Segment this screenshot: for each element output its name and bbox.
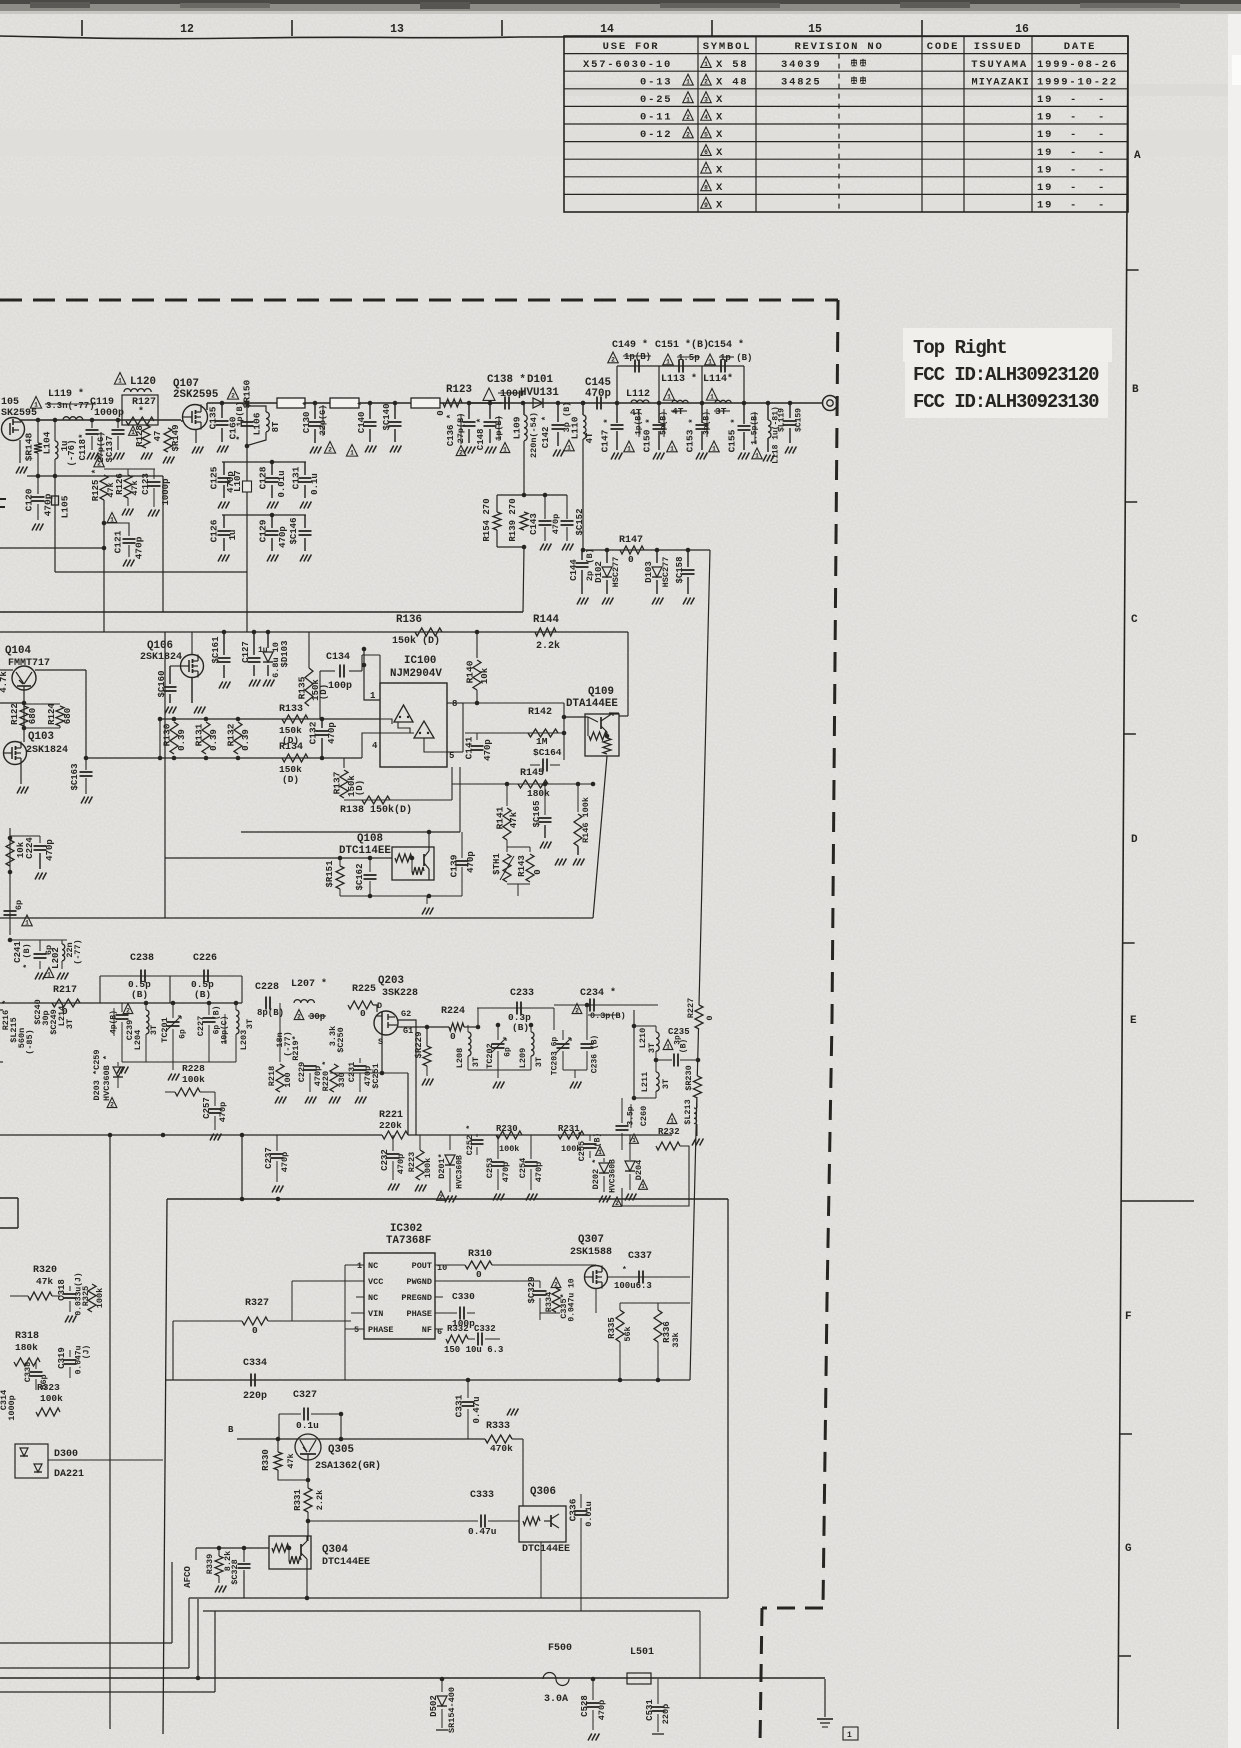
svg-text:$L119: $L119 [778,408,787,432]
svg-text:1: 1 [632,1137,636,1144]
svg-text:*: * [622,1266,627,1275]
svg-text:14: 14 [600,23,614,36]
svg-text:2SK1824: 2SK1824 [140,652,182,663]
svg-text:R122: R122 [10,703,20,725]
svg-text:MIYAZAKI: MIYAZAKI [971,77,1030,88]
svg-text:34039: 34039 [781,59,822,71]
svg-text:$C160: $C160 [157,670,167,697]
svg-text:1: 1 [357,1261,362,1271]
svg-text:1: 1 [25,919,29,926]
svg-text:Top Right: Top Right [913,337,1007,359]
svg-text:*: * [138,406,144,418]
svg-text:C232: C232 [380,1149,390,1171]
svg-text:X: X [716,112,724,124]
svg-text:6p: 6p [179,1029,188,1039]
svg-text:10k: 10k [480,667,490,684]
svg-text:E: E [1130,1015,1137,1027]
svg-text:$C152: $C152 [575,508,585,535]
svg-text:1: 1 [503,446,507,453]
svg-text:R124: R124 [47,703,57,725]
svg-text:R142: R142 [528,707,552,718]
svg-text:1: 1 [110,516,114,523]
svg-text:0: 0 [628,554,634,565]
svg-text:C127: C127 [241,641,251,663]
svg-text:R223: R223 [407,1152,417,1172]
svg-text:C149 *: C149 * [612,339,648,351]
svg-text:*: * [688,418,698,423]
svg-text:D: D [1131,834,1138,846]
svg-text:C229: C229 [297,1062,307,1082]
svg-text:R318: R318 [15,1331,39,1342]
svg-text:R144: R144 [533,614,559,626]
svg-text:R218: R218 [267,1066,277,1086]
svg-text:C331: C331 [454,1394,465,1417]
svg-text:R125 *: R125 * [91,469,101,501]
svg-text:PWGND: PWGND [406,1277,432,1287]
svg-text:470p: 470p [501,1162,511,1182]
svg-text:220n(-54): 220n(-54) [529,412,539,458]
svg-text:47k: 47k [286,1453,296,1468]
svg-text:2: 2 [575,1007,579,1014]
svg-text:$C329: $C329 [527,1276,537,1303]
svg-text:-: - [1070,94,1078,106]
svg-text:6: 6 [704,149,708,156]
svg-text:R143: R143 [517,855,527,877]
svg-text:8: 8 [452,699,457,709]
svg-text:R325: R325 [81,1286,91,1306]
svg-text:0: 0 [705,1015,715,1020]
svg-text:SK2595: SK2595 [1,408,37,419]
svg-text:$C162: $C162 [355,863,365,890]
svg-text:(-76): (-76) [67,439,77,466]
svg-text:C253: C253 [485,1158,495,1178]
svg-text:D502: D502 [429,1695,439,1717]
svg-text:-: - [1098,182,1106,194]
svg-text:-: - [1070,147,1078,159]
svg-text:Q106: Q106 [147,640,173,652]
svg-text:2.2k: 2.2k [315,1490,325,1510]
svg-text:* (B): * (B) [22,943,32,969]
svg-text:C150: C150 [642,429,653,452]
svg-text:L105: L105 [60,495,71,518]
svg-text:AFCO: AFCO [183,1566,193,1588]
svg-text:1u: 1u [228,530,238,541]
svg-text:1: 1 [641,1183,645,1190]
svg-text:220p: 220p [661,1704,671,1724]
svg-text:0.39: 0.39 [241,729,251,751]
svg-text:C143: C143 [529,513,539,535]
svg-text:L203: L203 [239,1030,249,1050]
svg-text:L107: L107 [233,470,243,492]
svg-text:6p: 6p [14,900,24,910]
svg-text:C141: C141 [464,736,475,759]
svg-text:L110: L110 [570,416,581,439]
svg-text:1: 1 [847,1731,852,1740]
svg-text:47k: 47k [130,480,140,495]
svg-text:0: 0 [436,410,446,415]
svg-text:2SK1588: 2SK1588 [570,1247,612,1258]
svg-text:100k: 100k [182,1074,205,1085]
svg-text:R327: R327 [245,1298,269,1309]
svg-text:$D103: $D103 [280,640,290,667]
svg-text:-: - [1070,129,1078,141]
svg-text:R146 100k: R146 100k [581,797,591,843]
svg-text:C260: C260 [639,1106,649,1126]
svg-text:1: 1 [712,445,716,452]
svg-text:470p: 470p [466,851,476,873]
svg-text:R227: R227 [686,998,696,1018]
svg-text:C132: C132 [308,721,319,744]
svg-text:R333: R333 [486,1421,510,1432]
svg-text:220k: 220k [379,1120,402,1131]
svg-text:R154 270: R154 270 [482,498,492,541]
svg-text:-: - [1098,164,1106,176]
svg-text:D101: D101 [527,374,553,386]
svg-text:13: 13 [390,23,404,36]
svg-text:680: 680 [63,708,73,724]
svg-text:100k: 100k [499,1144,519,1154]
svg-text:HSC277: HSC277 [611,557,621,588]
svg-text:-: - [1070,164,1078,176]
svg-text:C337: C337 [628,1251,652,1262]
svg-text:470p: 470p [45,839,55,861]
svg-text:R137: R137 [332,771,343,794]
svg-text:$C163: $C163 [70,763,80,790]
svg-text:C327: C327 [293,1390,317,1401]
svg-text:C154 *: C154 * [708,339,744,351]
svg-text:C228: C228 [255,982,279,993]
svg-text:L209: L209 [518,1048,528,1068]
svg-text:100k: 100k [423,1158,433,1178]
svg-text:220p: 220p [243,1391,267,1402]
svg-text:R138 150k(D): R138 150k(D) [340,804,412,816]
svg-text:TC202: TC202 [485,1043,495,1069]
svg-text:C140 *: C140 * [357,401,367,433]
svg-text:REVISION NO: REVISION NO [794,41,883,53]
svg-text:2SK2595: 2SK2595 [173,389,218,401]
svg-text:C254: C254 [518,1158,528,1178]
svg-text:R217: R217 [53,985,77,996]
svg-text:TA7368F: TA7368F [386,1235,431,1247]
svg-text:R147: R147 [619,535,643,546]
svg-text:*: * [603,418,613,423]
svg-text:R123: R123 [446,384,472,396]
svg-text:R136: R136 [396,614,422,626]
svg-text:Q103: Q103 [28,731,54,743]
svg-text:-: - [1098,94,1106,106]
svg-text:R230: R230 [496,1124,518,1134]
svg-text:19: 19 [1037,200,1053,212]
svg-text:C236 (B): C236 (B) [591,1035,600,1073]
svg-text:C255 *: C255 * [577,1131,587,1162]
svg-text:1u: 1u [258,646,268,655]
svg-text:POUT: POUT [412,1261,432,1271]
svg-text:3T: 3T [534,1057,544,1067]
svg-text:2: 2 [328,447,332,454]
svg-text:4.7k: 4.7k [0,671,9,693]
svg-text:HVC360B *: HVC360B * [102,1055,112,1101]
svg-text:NF: NF [422,1325,432,1335]
svg-text:R130: R130 [162,723,173,746]
svg-text:1: 1 [567,444,571,451]
svg-text:Q306: Q306 [530,1486,556,1498]
svg-text:1999-10-22: 1999-10-22 [1037,76,1118,88]
svg-text:C238: C238 [130,953,154,964]
svg-text:$TH1: $TH1 [492,853,502,875]
svg-text:L202: L202 [51,947,61,969]
svg-text:-: - [1070,200,1078,212]
svg-text:30p: 30p [309,1012,325,1022]
svg-text:X: X [716,129,724,141]
svg-text:1: 1 [755,452,759,459]
svg-text:1M: 1M [536,736,548,747]
svg-text:19: 19 [1037,147,1053,159]
svg-text:F: F [1125,1311,1132,1323]
svg-text:X 58: X 58 [716,59,748,71]
svg-text:2: 2 [615,1200,619,1207]
svg-text:X57-6030-10: X57-6030-10 [583,59,672,71]
svg-text:X 48: X 48 [716,76,748,88]
svg-text:R220 *: R220 * [321,1061,331,1092]
svg-text:0.01u: 0.01u [584,1501,594,1527]
svg-text:R228: R228 [182,1063,205,1074]
svg-text:C131: C131 [291,466,302,489]
svg-text:56k: 56k [623,1326,633,1341]
svg-text:2SK1824: 2SK1824 [26,745,68,756]
svg-text:105: 105 [1,397,19,408]
svg-text:$C164: $C164 [533,747,562,758]
svg-text:L501: L501 [630,1647,654,1658]
svg-text:C135: C135 [208,406,219,429]
svg-text:R219*: R219* [291,1035,301,1061]
svg-text:D102: D102 [594,561,604,583]
svg-text:15: 15 [808,23,822,36]
svg-text:DTC144EE: DTC144EE [522,1544,570,1555]
svg-text:B: B [1132,384,1139,396]
svg-text:2: 2 [686,114,690,121]
svg-text:19: 19 [1037,182,1053,194]
svg-text:L109: L109 [512,416,523,439]
svg-text:470p: 470p [280,1152,290,1172]
svg-text:C333: C333 [470,1490,494,1501]
svg-text:1p(B): 1p(B) [624,352,651,362]
svg-text:C144: C144 [569,559,579,581]
svg-text:X: X [716,200,724,212]
svg-text:(D): (D) [282,774,299,785]
svg-text:X: X [716,164,724,176]
svg-text:4: 4 [704,114,708,121]
svg-text:Q108: Q108 [357,833,383,845]
svg-text:1: 1 [47,971,51,978]
svg-text:L106: L106 [252,412,263,435]
svg-text:0.047u 10: 0.047u 10 [568,1278,577,1321]
svg-text:$R148: $R148 [24,432,35,461]
svg-text:C155: C155 [727,429,738,452]
svg-text:180k: 180k [527,788,550,799]
svg-text:C226: C226 [193,953,217,964]
svg-text:-: - [1070,112,1078,124]
svg-text:C148 *: C148 * [476,418,486,450]
svg-text:C234 *: C234 * [580,987,616,999]
svg-text:680: 680 [28,708,38,724]
svg-text:$C328: $C328 [230,1559,240,1585]
svg-text:0: 0 [533,869,543,874]
svg-text:L208: L208 [455,1048,465,1068]
svg-text:470p: 470p [396,1154,406,1174]
svg-text:12: 12 [180,23,194,36]
svg-text:(B): (B) [194,989,211,1000]
svg-text:1: 1 [708,358,712,365]
svg-text:-: - [1098,112,1106,124]
svg-text:47k: 47k [509,811,519,828]
svg-text:R141: R141 [495,806,506,829]
svg-text:0.01u: 0.01u [277,470,287,497]
svg-text:DTC114EE: DTC114EE [339,845,391,857]
svg-text:C134: C134 [326,652,350,663]
svg-text:2: 2 [231,393,235,400]
svg-text:R225: R225 [352,984,376,995]
svg-text:1: 1 [667,394,671,401]
svg-text:C118*: C118* [78,433,88,460]
svg-text:ISSUED: ISSUED [974,41,1023,53]
svg-text:R134: R134 [279,742,303,753]
svg-text:D201*: D201* [437,1153,447,1179]
svg-text:TC201: TC201 [160,1017,170,1043]
svg-text:IC100: IC100 [404,655,436,667]
svg-text:C334: C334 [243,1358,267,1369]
svg-text:0: 0 [450,1031,456,1042]
svg-text:R133: R133 [279,704,303,715]
svg-text:L114*: L114* [703,373,733,385]
svg-text:C237: C237 [264,1147,274,1169]
svg-text:470p: 470p [585,388,611,400]
svg-text:2: 2 [611,356,615,363]
svg-text:C252 *: C252 * [465,1125,475,1156]
svg-text:R139 270: R139 270 [508,498,518,541]
svg-text:180k: 180k [15,1342,38,1353]
svg-text:1: 1 [370,691,376,701]
svg-text:0-12: 0-12 [640,129,672,141]
svg-text:C125: C125 [209,466,220,489]
svg-text:2: 2 [554,1281,558,1288]
svg-text:0.47u: 0.47u [468,1526,497,1537]
svg-text:2: 2 [297,1013,301,1020]
svg-text:L113 *: L113 * [661,373,697,385]
svg-text:4T: 4T [585,432,595,443]
svg-text:2: 2 [459,449,463,456]
svg-text:2SA1362(GR): 2SA1362(GR) [315,1460,381,1472]
svg-text:C153: C153 [685,429,696,452]
svg-text:C126: C126 [209,519,220,542]
svg-text:16: 16 [1015,23,1029,36]
svg-text:1.5p: 1.5p [678,353,700,363]
svg-text:NJM2904V: NJM2904V [390,668,442,680]
svg-text:R331: R331 [293,1489,303,1511]
svg-text:C336: C336 [568,1498,579,1521]
svg-text:R224: R224 [441,1006,465,1017]
svg-text:0.1u: 0.1u [296,1420,319,1431]
svg-text:-: - [1098,147,1106,159]
svg-text:C139: C139 [449,854,460,877]
svg-text:*: * [235,435,245,440]
svg-text:4: 4 [372,741,378,751]
svg-text:(D): (D) [355,780,365,796]
svg-text:-: - [1098,129,1106,141]
svg-text:DA221: DA221 [54,1469,84,1480]
svg-text:$C165: $C165 [532,800,542,827]
svg-text:1: 1 [686,79,690,86]
svg-text:$R151: $R151 [325,860,335,888]
svg-text:19: 19 [1037,129,1053,141]
svg-text:2: 2 [704,79,708,86]
svg-text:L112: L112 [626,389,650,400]
svg-text:C136 *: C136 * [446,414,456,446]
svg-text:1000p: 1000p [7,1395,17,1421]
svg-text:470p: 470p [218,1102,228,1122]
svg-text:$L213: $L213 [683,1099,693,1125]
svg-text:1: 1 [350,450,354,457]
svg-text:VCC: VCC [368,1277,383,1287]
svg-text:-: - [1070,182,1078,194]
svg-text:R140: R140 [465,660,476,683]
svg-text:19: 19 [1037,112,1053,124]
svg-text:R330: R330 [261,1449,271,1471]
svg-text:-: - [1098,200,1106,212]
svg-text:HVC360B: HVC360B [609,1159,618,1193]
svg-text:Q109: Q109 [588,686,614,698]
svg-text:R334: R334 [544,1292,554,1312]
svg-text:C233: C233 [510,988,534,999]
svg-text:DTA144EE: DTA144EE [566,698,618,710]
svg-text:3.0A: 3.0A [544,1694,568,1705]
svg-text:C121: C121 [113,530,124,553]
svg-text:8: 8 [704,184,708,191]
svg-text:1: 1 [666,358,670,365]
svg-text:PHASE: PHASE [368,1325,394,1335]
svg-text:100: 100 [283,1072,293,1087]
svg-text:470p: 470p [551,514,561,534]
svg-text:C123: C123 [141,473,151,495]
svg-text:100p: 100p [328,681,352,692]
svg-text:0-13: 0-13 [640,76,672,88]
svg-text:FCC ID:ALH30923120: FCC ID:ALH30923120 [913,364,1099,386]
svg-text:C129: C129 [258,519,269,542]
svg-text:2: 2 [126,1007,130,1014]
svg-text:C147: C147 [600,429,611,452]
svg-text:SYMBOL: SYMBOL [703,41,752,53]
svg-text:0: 0 [252,1325,258,1336]
svg-text:1: 1 [666,1043,670,1050]
svg-text:R332: R332 [447,1324,469,1334]
svg-text:(B): (B) [131,989,148,1000]
svg-text:TC203 6p: TC203 6p [551,1037,560,1076]
svg-text:470p: 470p [327,722,337,744]
svg-text:1: 1 [627,445,631,452]
svg-text:(-85): (-85) [25,1029,35,1055]
svg-text:470p: 470p [278,526,288,548]
svg-text:X: X [716,182,724,194]
svg-text:$C250: $C250 [336,1027,346,1053]
svg-text:C227: C227 [196,1016,206,1036]
svg-text:(-77): (-77) [73,939,83,965]
svg-text:C142 *: C142 * [541,416,551,448]
svg-text:SR154-400: SR154-400 [447,1687,457,1733]
svg-text:$R229: $R229 [414,1031,424,1058]
svg-text:HVC360B: HVC360B [456,1155,465,1189]
svg-text:R128: R128 [135,425,145,447]
svg-text:C318: C318 [57,1279,67,1301]
svg-text:Q104: Q104 [5,645,31,657]
